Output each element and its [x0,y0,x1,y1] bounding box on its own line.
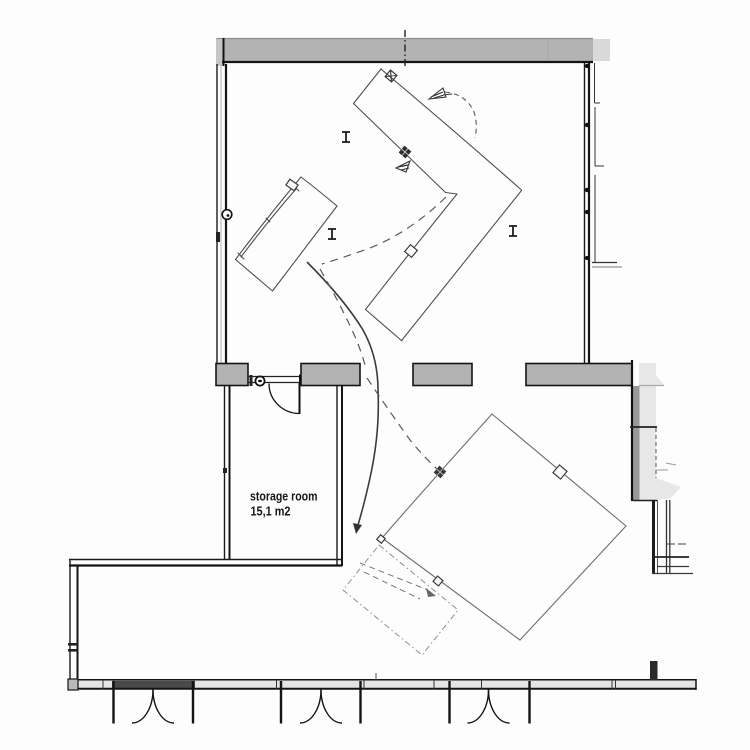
svg-text:storage room: storage room [250,490,318,504]
svg-text:15,1 m2: 15,1 m2 [251,505,291,519]
